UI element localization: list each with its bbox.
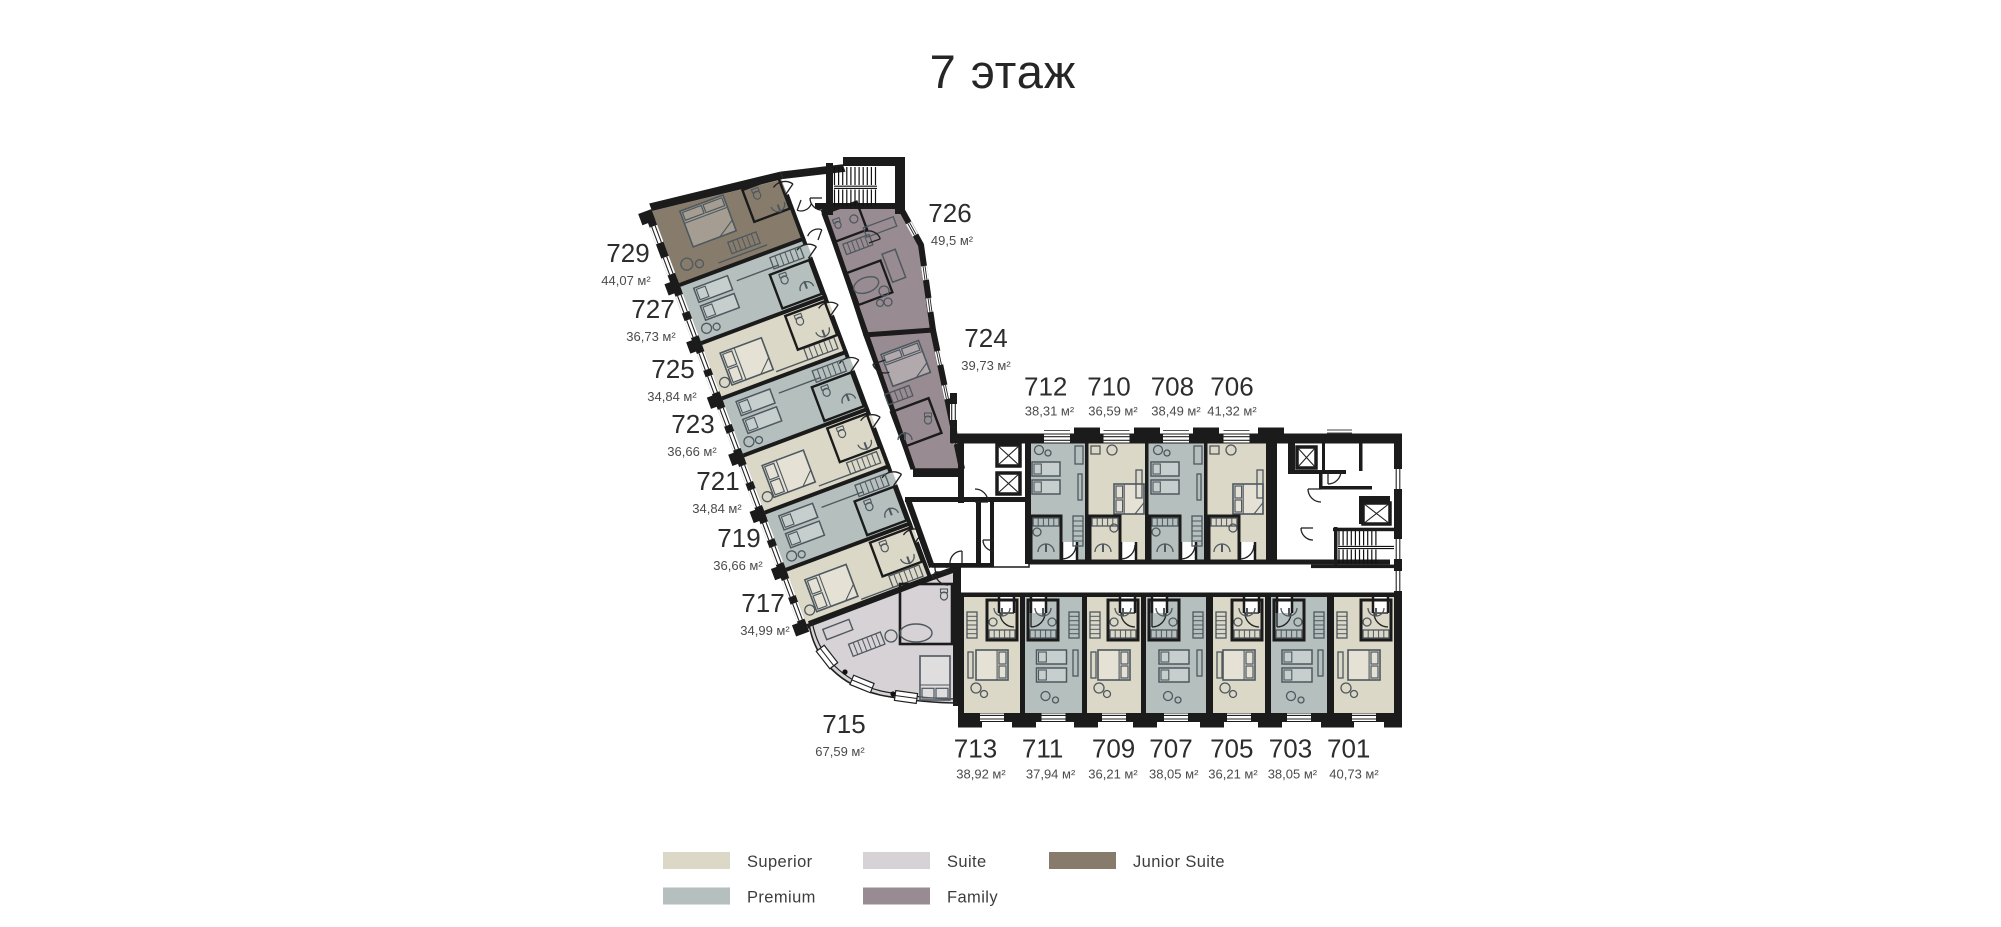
svg-text:708: 708 <box>1151 372 1194 402</box>
svg-text:7 этаж: 7 этаж <box>930 45 1077 98</box>
svg-text:712: 712 <box>1024 372 1067 402</box>
svg-text:721: 721 <box>696 466 739 496</box>
svg-text:34,84 м²: 34,84 м² <box>692 501 742 516</box>
svg-text:36,21 м²: 36,21 м² <box>1208 767 1258 782</box>
svg-text:Superior: Superior <box>747 853 813 871</box>
svg-text:49,5 м²: 49,5 м² <box>931 233 974 248</box>
svg-text:41,32 м²: 41,32 м² <box>1207 404 1257 419</box>
svg-text:36,73 м²: 36,73 м² <box>626 329 676 344</box>
svg-text:34,84 м²: 34,84 м² <box>647 389 697 404</box>
svg-text:706: 706 <box>1210 372 1253 402</box>
svg-text:38,05 м²: 38,05 м² <box>1149 767 1199 782</box>
svg-text:703: 703 <box>1269 734 1312 764</box>
svg-text:38,49 м²: 38,49 м² <box>1151 404 1201 419</box>
svg-text:44,07 м²: 44,07 м² <box>601 273 651 288</box>
svg-text:719: 719 <box>717 523 760 553</box>
svg-text:715: 715 <box>822 709 865 739</box>
svg-text:Family: Family <box>947 889 998 907</box>
svg-text:701: 701 <box>1327 734 1370 764</box>
svg-text:711: 711 <box>1022 734 1063 764</box>
svg-text:729: 729 <box>606 238 649 268</box>
svg-text:38,92 м²: 38,92 м² <box>956 767 1006 782</box>
svg-text:710: 710 <box>1087 372 1130 402</box>
svg-text:36,21 м²: 36,21 м² <box>1088 767 1138 782</box>
svg-text:40,73 м²: 40,73 м² <box>1329 767 1379 782</box>
svg-text:38,31 м²: 38,31 м² <box>1025 404 1075 419</box>
svg-text:725: 725 <box>651 354 694 384</box>
svg-text:705: 705 <box>1210 734 1253 764</box>
svg-text:36,66 м²: 36,66 м² <box>667 444 717 459</box>
svg-text:37,94 м²: 37,94 м² <box>1026 767 1076 782</box>
svg-text:38,05 м²: 38,05 м² <box>1268 767 1318 782</box>
svg-text:34,99 м²: 34,99 м² <box>740 623 790 638</box>
svg-text:36,66 м²: 36,66 м² <box>713 558 763 573</box>
svg-text:36,59 м²: 36,59 м² <box>1088 404 1138 419</box>
svg-text:Premium: Premium <box>747 889 816 907</box>
svg-text:Junior Suite: Junior Suite <box>1133 853 1225 871</box>
svg-text:717: 717 <box>741 588 784 618</box>
svg-text:39,73 м²: 39,73 м² <box>961 358 1011 373</box>
svg-text:707: 707 <box>1149 734 1192 764</box>
svg-text:713: 713 <box>954 734 997 764</box>
svg-text:Suite: Suite <box>947 853 987 871</box>
svg-text:724: 724 <box>964 323 1007 353</box>
svg-text:723: 723 <box>671 409 714 439</box>
svg-text:709: 709 <box>1092 734 1135 764</box>
svg-text:67,59 м²: 67,59 м² <box>815 744 865 759</box>
svg-text:727: 727 <box>631 294 674 324</box>
svg-text:726: 726 <box>928 198 971 228</box>
